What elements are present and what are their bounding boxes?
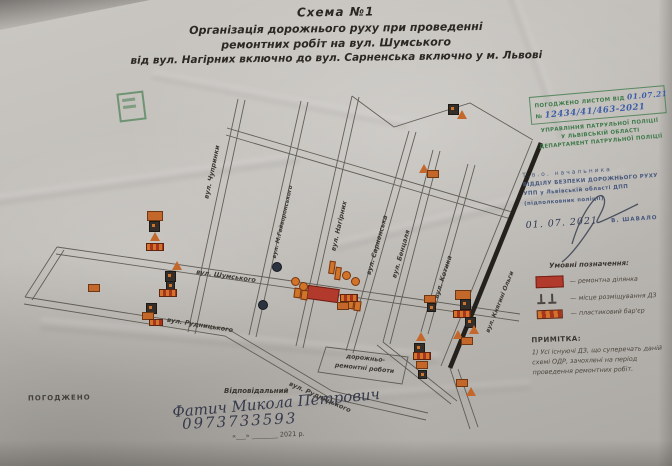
scheme-title: Схема №1 Організація дорожнього руху при…: [0, 0, 672, 68]
round-sign-icon: [258, 300, 268, 310]
repair-area-swatch-icon: [535, 275, 563, 288]
road-sign-plate-icon: [88, 284, 100, 292]
legend: Умовні позначення: — ремонтна ділянка — …: [535, 258, 669, 326]
legend-item-repair: — ремонтна ділянка: [535, 272, 667, 289]
stamp-fragment: [116, 90, 146, 122]
legend-item-signs: — місце розміщування ДЗ: [536, 290, 668, 305]
barrier-dash-icon: [300, 290, 308, 301]
sign-post-icon: [536, 294, 545, 304]
signature-squiggle: [558, 182, 650, 264]
warning-triangle-icon: [416, 332, 426, 341]
road-sign-plate-icon: [427, 170, 439, 178]
warning-triangle-icon: [150, 232, 160, 241]
round-sign-icon: [272, 262, 282, 272]
barrier-stripe-icon: [149, 319, 163, 326]
road-sign-plate-icon: [456, 379, 468, 387]
road-sign-plate-icon: [416, 361, 428, 369]
document-photo: вул. Чупринки вул. М.Гайворонського вул.…: [0, 0, 672, 466]
warning-triangle-icon: [466, 387, 476, 396]
orange-round-sign-icon: [342, 271, 351, 280]
legend-item-label: — місце розміщування ДЗ: [570, 292, 657, 302]
warning-triangle-icon: [457, 110, 467, 119]
legend-item-label: — пластиковий бар'єр: [571, 308, 645, 318]
warning-triangle-icon: [172, 261, 182, 270]
barrier-stripe-icon: [413, 352, 431, 360]
plastic-barrier-swatch-icon: [537, 309, 563, 319]
note-block: ПРИМІТКА: 1) Усі існуючі ДЗ, що супереча…: [531, 332, 668, 378]
orange-round-sign-icon: [299, 282, 308, 291]
note-text: 1) Усі існуючі ДЗ, що суперечать даній с…: [532, 344, 669, 378]
road-sign-plate-icon: [424, 295, 436, 303]
road-sign-stack-icon: [460, 299, 471, 310]
barrier-stripe-icon: [340, 294, 358, 302]
road-sign-plate-icon: [337, 302, 349, 310]
approval-date-handwritten: 01.07.21: [627, 89, 668, 101]
road-sign-stack-icon: [149, 221, 160, 232]
approval-number-prefix: №: [535, 114, 542, 121]
barrier-dash-icon: [353, 301, 361, 312]
road-sign-stack-icon: [427, 303, 436, 312]
orange-round-sign-icon: [351, 277, 360, 286]
road-sign-plate-icon: [147, 211, 163, 221]
legend-item-label: — ремонтна ділянка: [569, 275, 637, 284]
warning-triangle-icon: [469, 325, 479, 334]
barrier-stripe-icon: [159, 289, 177, 297]
approval-stamp: ПОГОДЖЕНО ЛИСТОМ ВІД 01.07.21 № 12434/41…: [529, 85, 669, 152]
road-sign-plate-icon: [461, 337, 473, 345]
barrier-stripe-icon: [146, 243, 164, 251]
road-sign-stack-icon: [418, 370, 427, 379]
sign-post-icon: [547, 294, 556, 304]
legend-item-barrier: — пластиковий бар'єр: [537, 306, 669, 320]
agreed-label: ПОГОДЖЕНО: [28, 393, 91, 402]
